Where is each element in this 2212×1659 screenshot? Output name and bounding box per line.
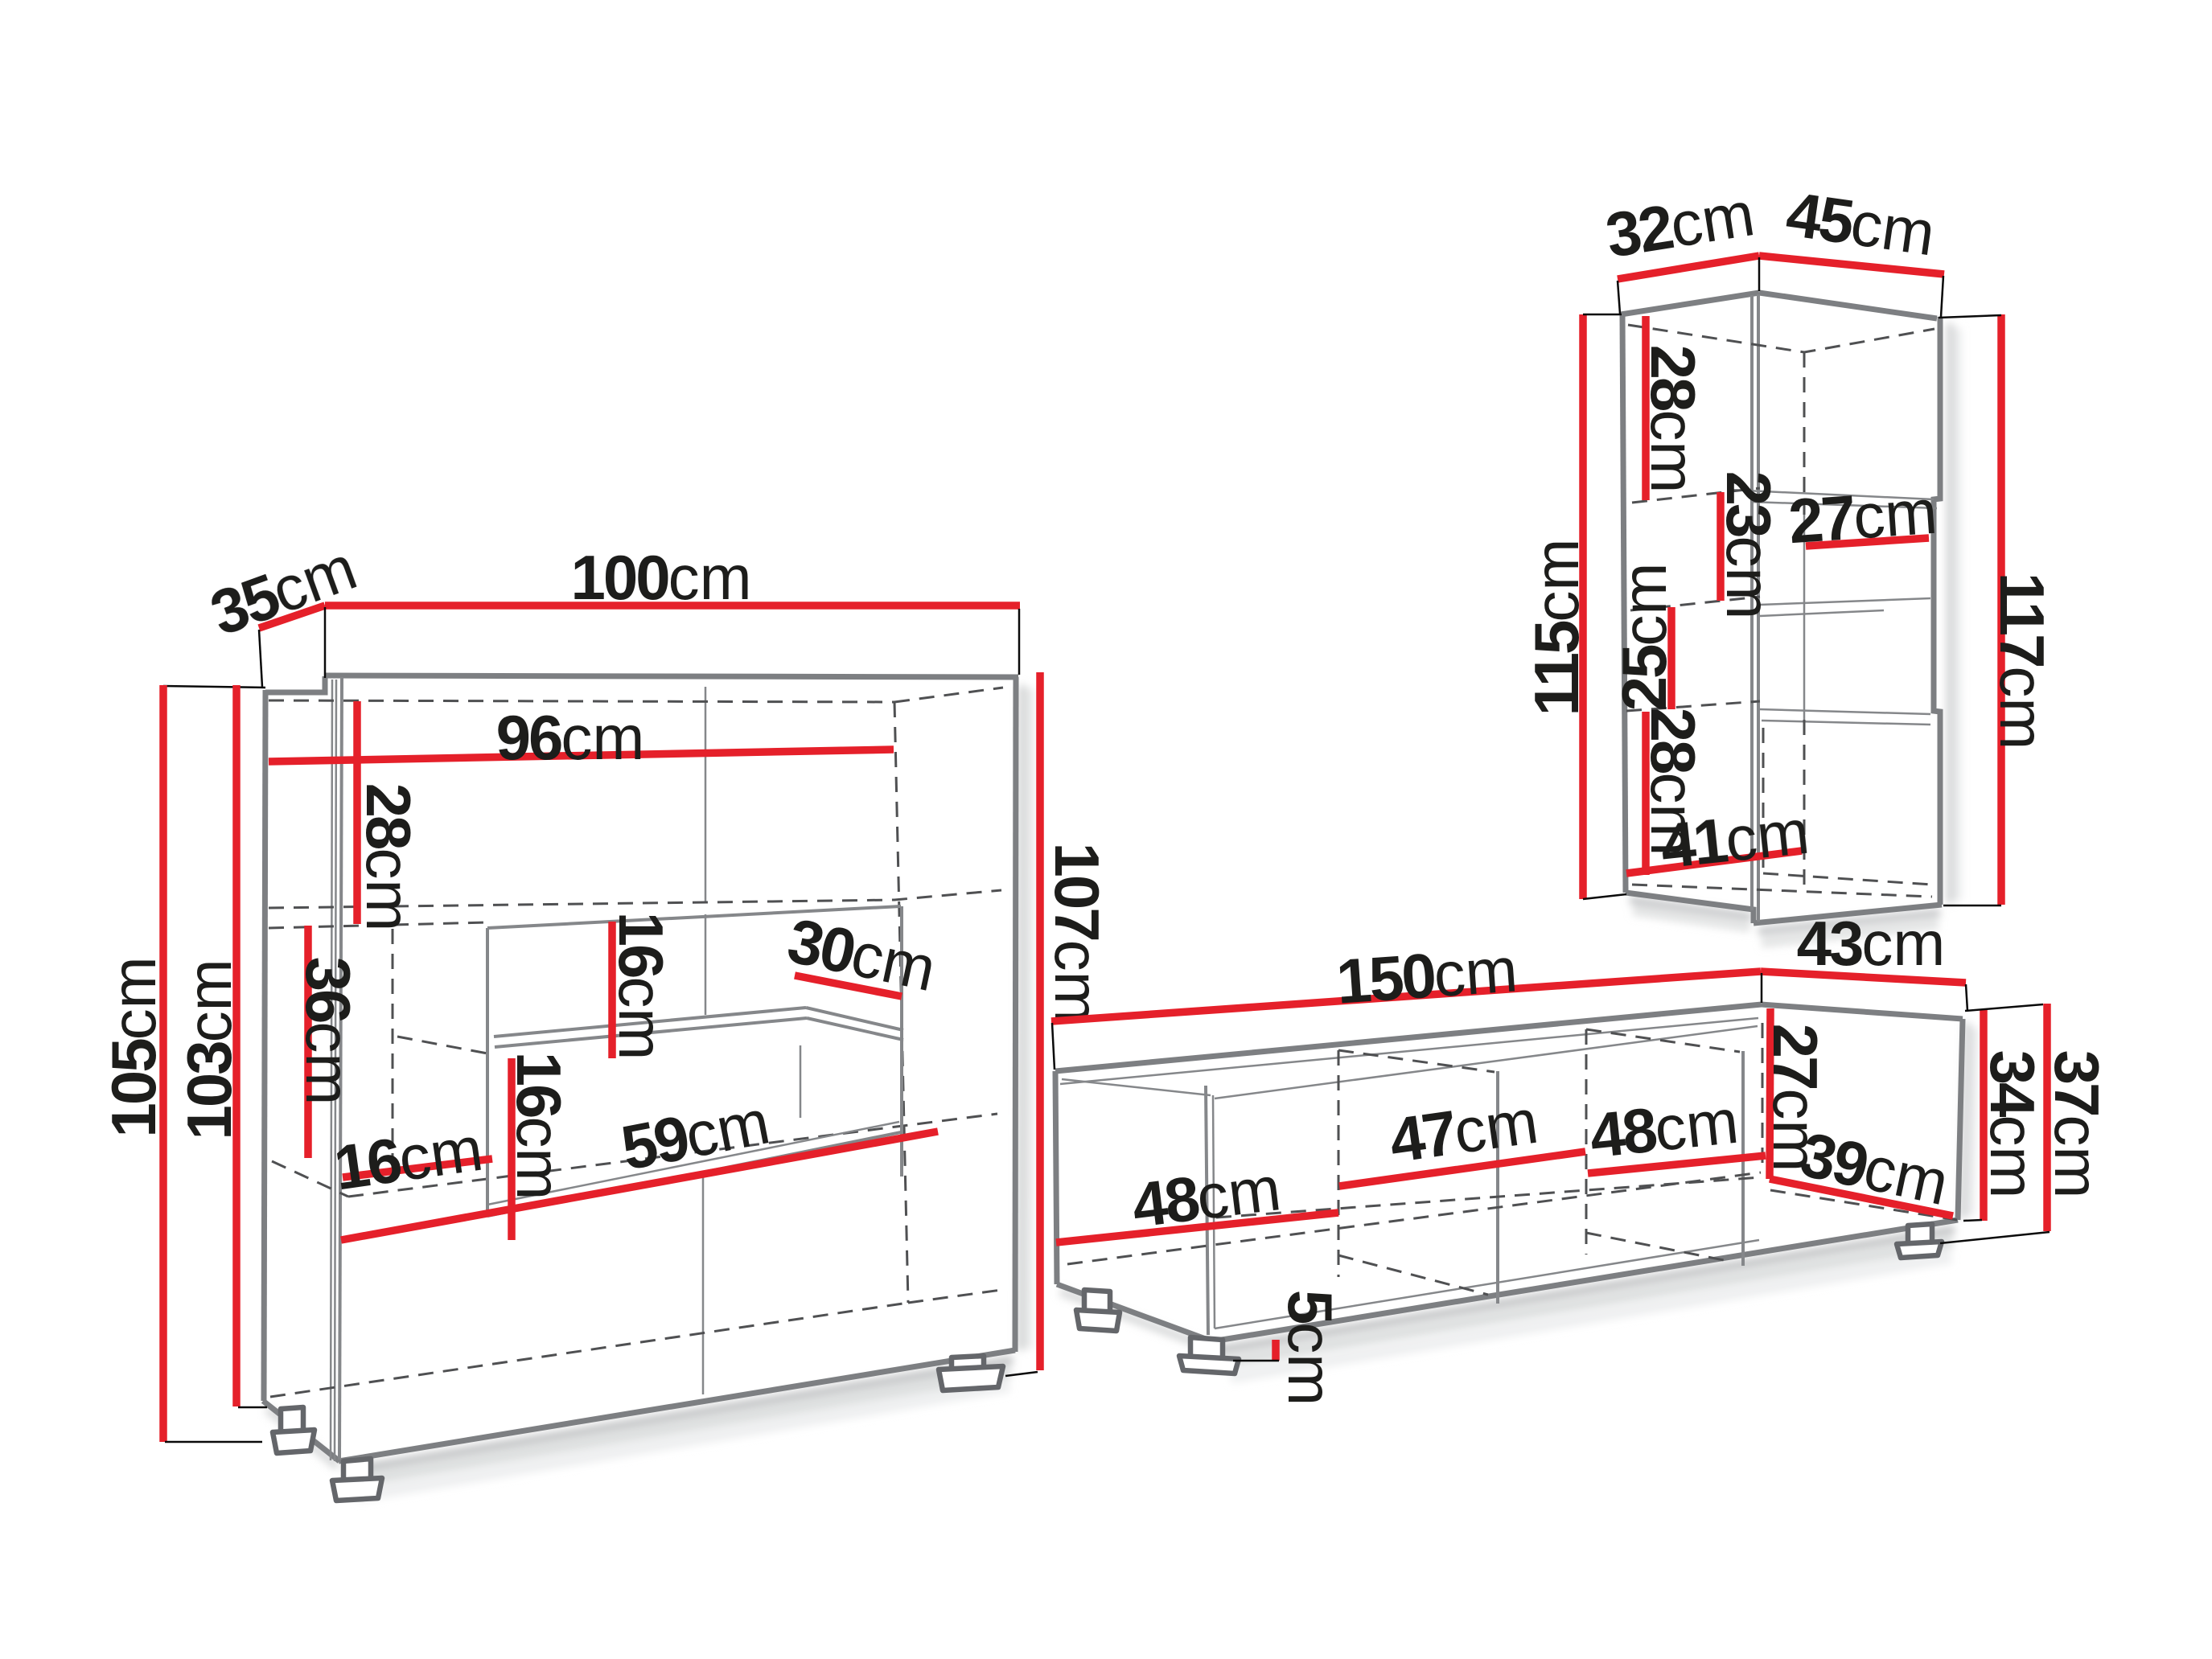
svg-text:43cm: 43cm <box>1797 908 1946 979</box>
svg-text:34cm: 34cm <box>1977 1050 2048 1199</box>
svg-text:107cm: 107cm <box>1042 842 1112 1023</box>
svg-text:25cm: 25cm <box>1609 563 1680 712</box>
svg-text:23cm: 23cm <box>1713 471 1784 620</box>
svg-text:16cm: 16cm <box>606 912 676 1061</box>
svg-text:28cm: 28cm <box>1638 345 1708 494</box>
svg-text:100cm: 100cm <box>570 542 751 613</box>
svg-text:115cm: 115cm <box>1521 539 1592 717</box>
svg-text:27cm: 27cm <box>1786 476 1939 557</box>
svg-text:105cm: 105cm <box>98 956 169 1137</box>
svg-text:103cm: 103cm <box>174 959 245 1140</box>
svg-text:37cm: 37cm <box>2041 1050 2112 1199</box>
svg-text:150cm: 150cm <box>1334 934 1520 1016</box>
svg-text:117cm: 117cm <box>1987 573 2058 750</box>
svg-text:96cm: 96cm <box>496 702 645 773</box>
svg-text:16cm: 16cm <box>504 1052 574 1201</box>
svg-text:28cm: 28cm <box>353 783 424 932</box>
svg-text:5cm: 5cm <box>1275 1290 1346 1406</box>
svg-text:36cm: 36cm <box>293 957 364 1106</box>
